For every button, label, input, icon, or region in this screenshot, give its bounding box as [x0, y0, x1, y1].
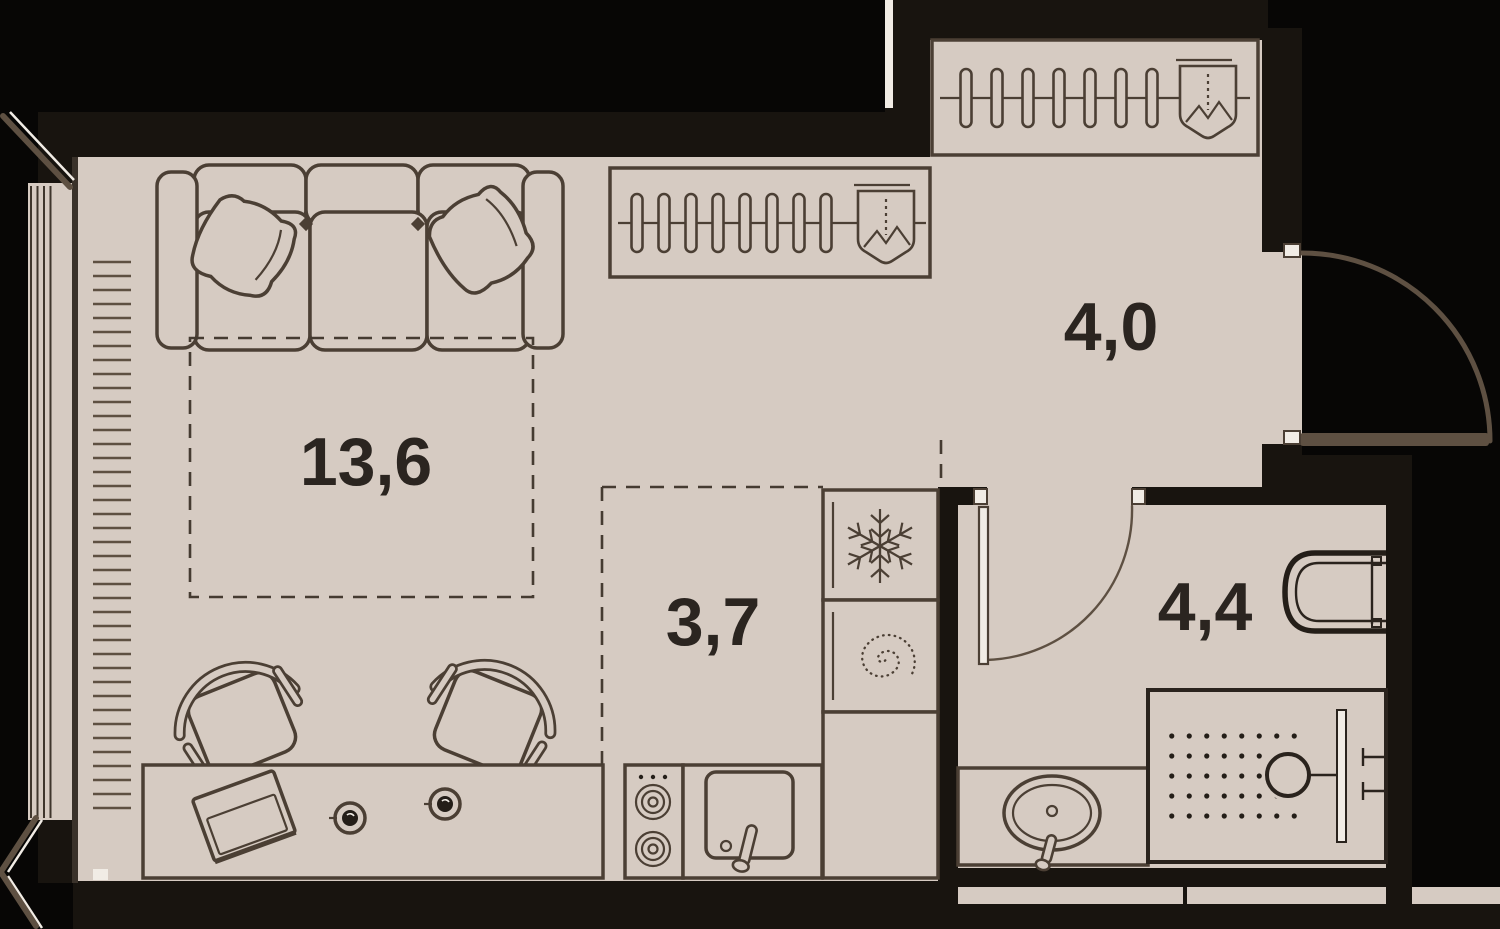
fridge — [823, 490, 938, 600]
balcony-floor — [28, 183, 77, 820]
hallway-area-label: 4,0 — [1064, 289, 1159, 365]
floor-plan-svg: 13,6 4,0 3,7 4,4 — [0, 0, 1500, 929]
kitchen-area-label: 3,7 — [666, 584, 761, 660]
shower — [1148, 690, 1386, 862]
sofa-armrest — [523, 172, 563, 348]
wardrobe-living — [610, 168, 930, 277]
wardrobe-hallway — [932, 40, 1258, 155]
entrance-door-leaf — [1300, 433, 1489, 446]
washing-machine — [823, 600, 938, 712]
living-room-area-label: 13,6 — [300, 424, 432, 500]
toilet — [1285, 553, 1386, 631]
vacuum-cleaner-icon — [854, 185, 914, 263]
stove — [625, 765, 683, 878]
entrance-threshold — [1262, 252, 1302, 444]
radiator — [93, 255, 131, 813]
kitchen-sink — [683, 765, 822, 878]
bathroom-door-leaf — [979, 507, 988, 664]
vacuum-cleaner-icon — [1176, 60, 1236, 138]
balcony-inner-wall — [72, 157, 78, 883]
desk — [143, 765, 603, 878]
sofa — [157, 165, 563, 350]
shower-glass-panel — [1337, 710, 1346, 842]
exterior-wall-strip — [953, 887, 1500, 904]
bathroom-counter — [958, 768, 1148, 872]
kitchen-cabinet — [823, 712, 938, 878]
floor-plan-page: 13,6 4,0 3,7 4,4 — [0, 0, 1500, 929]
bathroom-area-label: 4,4 — [1158, 569, 1253, 645]
